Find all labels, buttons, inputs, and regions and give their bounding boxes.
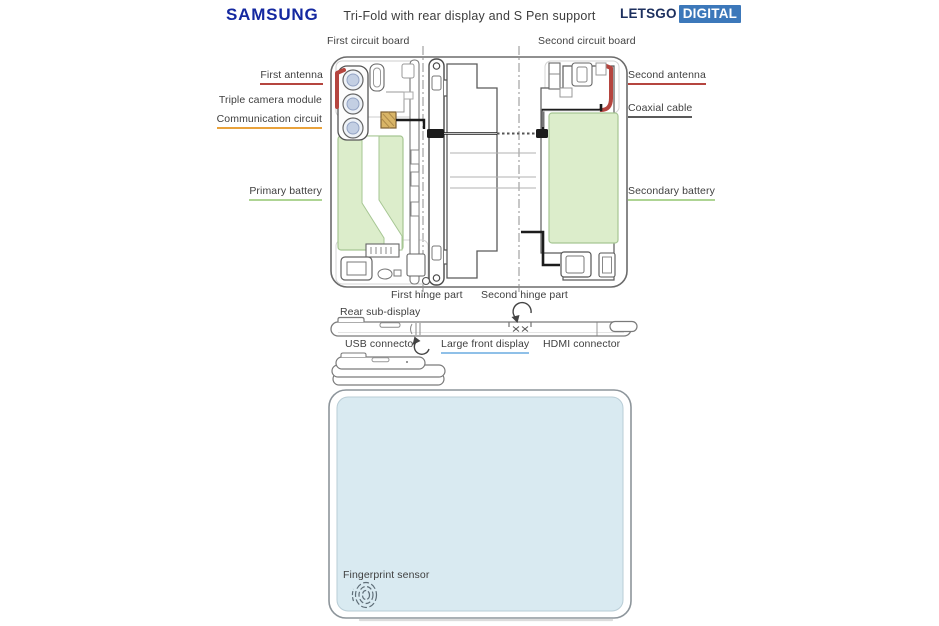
label-triple-camera-module: Triple camera module [219, 94, 322, 106]
camera-module-drawing [338, 66, 368, 140]
front-display-view [329, 390, 631, 620]
bottom-right-components [561, 252, 615, 277]
usb-notch [380, 323, 400, 328]
label-communication-circuit: Communication circuit [217, 113, 322, 129]
label-secondary-battery: Secondary battery [628, 185, 715, 201]
top-view-diagram [331, 46, 627, 292]
fold-rotation-arrow-top [512, 303, 532, 323]
label-rear-sub-display: Rear sub-display [340, 306, 420, 318]
label-primary-battery: Primary battery [249, 185, 322, 201]
trifold-patent-drawing [0, 0, 939, 626]
patent-page: SAMSUNG Tri-Fold with rear display and S… [0, 0, 939, 626]
label-coaxial-cable: Coaxial cable [628, 102, 692, 118]
label-hdmi-connector: HDMI connector [543, 338, 620, 350]
speaker-drawing [370, 64, 384, 91]
label-first-hinge-part: First hinge part [391, 289, 463, 301]
primary-battery-drawing [338, 136, 403, 250]
label-second-antenna: Second antenna [628, 69, 706, 85]
label-fingerprint-sensor: Fingerprint sensor [343, 569, 429, 581]
communication-circuit-chip [381, 112, 396, 128]
secondary-battery-drawing [549, 113, 618, 243]
label-second-circuit-board: Second circuit board [538, 35, 636, 47]
label-usb-connector: USB connector [345, 338, 417, 350]
side-body [331, 322, 631, 336]
s-pen [610, 322, 637, 332]
label-second-hinge-part: Second hinge part [481, 289, 568, 301]
label-large-front-display: Large front display [441, 338, 529, 354]
label-first-antenna: First antenna [260, 69, 323, 85]
side-view-folded [332, 353, 445, 385]
rear-display-bump [338, 318, 364, 323]
label-first-circuit-board: First circuit board [327, 35, 409, 47]
